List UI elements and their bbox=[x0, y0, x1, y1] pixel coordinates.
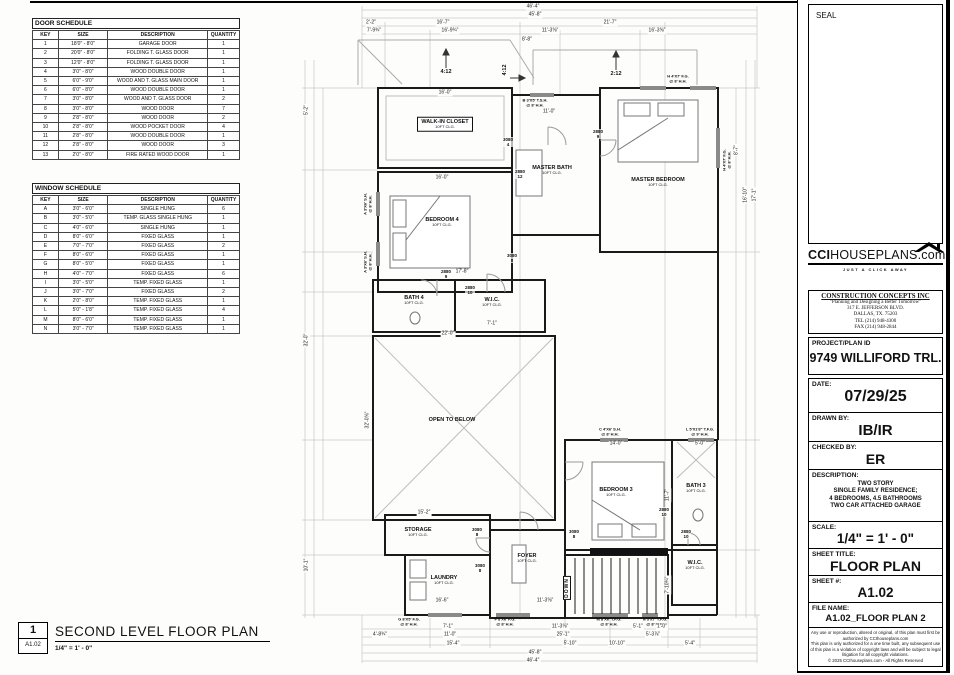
door-schedule-row: 122'8" - 8'0"WOOD DOOR3 bbox=[33, 141, 240, 150]
window-tag: C 4'X6' S.H.@ 8' H.H. bbox=[599, 427, 621, 436]
door-schedule-row: 220'0" - 8'0"FOLDING T. GLASS DOOR1 bbox=[33, 49, 240, 58]
description-line: TWO CAR ATTACHED GARAGE bbox=[809, 503, 942, 511]
dimension-label: 16'-7" bbox=[436, 20, 451, 26]
dimension-label: 16'-6" bbox=[435, 598, 450, 604]
company-name: CONSTRUCTION CONCEPTS INC bbox=[809, 291, 942, 300]
window-tag: F 8'X6' F.G.@ 8' H.H. bbox=[494, 617, 515, 626]
dimension-label: 11'-3⅝" bbox=[551, 624, 570, 630]
room-label: WALK-IN CLOSET10FT CLG. bbox=[417, 117, 473, 132]
dimension-label: 17'-1" bbox=[752, 188, 758, 203]
window-schedule-row: J3'0" - 7'0"FIXED GLASS2 bbox=[33, 288, 240, 297]
roof-pitch-label: 2:12 bbox=[610, 71, 621, 77]
window-tag: B 3'X5' T.S.H.@ 8' H.H. bbox=[522, 98, 547, 107]
window-schedule-row: F8'0" - 6'0"FIXED GLASS1 bbox=[33, 251, 240, 260]
window-tag: A 3'X6' S.H.@ 8' H.H. bbox=[363, 193, 372, 215]
checked-by-box: CHECKED BY: ER bbox=[808, 441, 943, 470]
window-tag: A 3'X6' S.H.@ 8' H.H. bbox=[363, 251, 372, 273]
window-schedule-body: A3'0" - 6'0"SINGLE HUNG6B3'0" - 5'0"TEMP… bbox=[33, 205, 240, 334]
description-box: DESCRIPTION: TWO STORYSINGLE FAMILY RESI… bbox=[808, 469, 943, 523]
door-schedule-table: KEYSIZEDESCRIPTIONQUANTITY 118'0" - 8'0"… bbox=[32, 30, 240, 160]
scale-label: SCALE: bbox=[809, 522, 942, 531]
room-label: W.I.C.10FT CLG. bbox=[666, 560, 724, 571]
room-label: MASTER BEDROOM10FT CLG. bbox=[629, 177, 687, 188]
drawn-by-label: DRAWN BY: bbox=[809, 413, 942, 422]
window-schedule-title: WINDOW SCHEDULE bbox=[32, 183, 240, 194]
seal-label: SEAL bbox=[809, 5, 942, 20]
project-id-box: PROJECT/PLAN ID 9749 WILLIFORD TRL. bbox=[808, 337, 943, 375]
dimension-label: 11'-0" bbox=[443, 632, 457, 638]
sheet-title-label: SHEET TITLE: bbox=[809, 549, 942, 558]
dimension-label: 8'-8" bbox=[521, 37, 533, 43]
door-schedule-row: 132'0" - 8'0"FIRE RATED WOOD DOOR1 bbox=[33, 150, 240, 159]
drawing-sheet-ref: A1.02 bbox=[19, 639, 47, 652]
dimension-label: 21'-7" bbox=[603, 20, 618, 26]
window-schedule-row: B3'0" - 5'0"TEMP. GLASS SINGLE HUNG1 bbox=[33, 214, 240, 223]
room-label: W.I.C.10FT CLG. bbox=[463, 297, 521, 308]
room-label: BATH 310FT CLG. bbox=[667, 483, 725, 494]
window-schedule-row: N3'0" - 7'0"TEMP. FIXED GLASS1 bbox=[33, 324, 240, 333]
door-schedule-row: 102'8" - 8'0"WOOD POCKET DOOR4 bbox=[33, 123, 240, 132]
scale-value: 1/4" = 1' - 0" bbox=[809, 531, 942, 546]
description-label: DESCRIPTION: bbox=[809, 470, 942, 479]
checked-by-label: CHECKED BY: bbox=[809, 442, 942, 451]
dimension-label: 15'-4" bbox=[446, 641, 461, 647]
dimension-label: 5'-2" bbox=[304, 104, 310, 116]
description-line: 4 BEDROOMS, 4.5 BATHROOMS bbox=[809, 496, 942, 504]
room-label: BEDROOM 410FT CLG. bbox=[413, 217, 471, 228]
door-tag: 30808 bbox=[507, 253, 517, 263]
roof-pitch-label: 4:12 bbox=[440, 69, 451, 75]
window-schedule-row: K2'0" - 8'0"TEMP. FIXED GLASS1 bbox=[33, 297, 240, 306]
logo-houseplans: HOUSEPLANS bbox=[830, 248, 917, 262]
drawing-number: 1 bbox=[19, 623, 47, 639]
drawing-number-box: 1 A1.02 bbox=[18, 622, 48, 654]
dimension-label: 17'-8" bbox=[455, 269, 470, 275]
sheet-number-box: SHEET #: A1.02 bbox=[808, 575, 943, 603]
date-box: DATE: 07/29/25 bbox=[808, 378, 943, 413]
drawing-sheet: WALK-IN CLOSET10FT CLG.MASTER BATH10FT C… bbox=[0, 0, 954, 675]
door-schedule-body: 118'0" - 8'0"GARAGE DOOR1220'0" - 8'0"FO… bbox=[33, 40, 240, 160]
dimension-label: 45'-8" bbox=[528, 650, 543, 656]
room-label: OPEN TO BELOW bbox=[423, 417, 481, 423]
window-schedule-row: D8'0" - 6'0"FIXED GLASS1 bbox=[33, 232, 240, 241]
dimension-label: 7'-1" bbox=[486, 321, 498, 327]
door-schedule: DOOR SCHEDULE KEYSIZEDESCRIPTIONQUANTITY… bbox=[32, 18, 240, 160]
window-tag: G 8'X5' F.G.@ 8' H.H. bbox=[398, 617, 420, 626]
dimension-label: 46'-4" bbox=[526, 4, 541, 10]
sheet-number-label: SHEET #: bbox=[809, 576, 942, 585]
logo-wordmark: CCIHOUSEPLANS.com bbox=[808, 248, 943, 265]
copyright-line: © 2025 CCIhouseplans.com - All Rights Re… bbox=[809, 658, 942, 664]
door-schedule-row: 66'0" - 8'0"WOOD DOUBLE DOOR1 bbox=[33, 86, 240, 95]
dimension-label: 32'-0⅝" bbox=[365, 411, 371, 430]
room-label: STORAGE10FT CLG. bbox=[389, 527, 447, 538]
door-tag: 30808 bbox=[472, 527, 482, 537]
dimension-label: 11'-0" bbox=[542, 109, 556, 115]
dimension-label: 7'-9¾" bbox=[366, 28, 382, 34]
scale-box: SCALE: 1/4" = 1' - 0" bbox=[808, 521, 943, 549]
dimension-label: 2'-2" bbox=[365, 20, 377, 26]
door-tag: 288012 bbox=[515, 169, 525, 179]
door-tag: 30804 bbox=[503, 137, 513, 147]
seal-box: SEAL bbox=[808, 4, 943, 244]
dimension-label: 15'-2" bbox=[417, 510, 432, 516]
door-tag: 28809 bbox=[593, 129, 603, 139]
dimension-label: 1'-0" bbox=[656, 624, 668, 630]
window-tag: L 5'X1'8" T.F.G.@ 9' H.H. bbox=[686, 427, 714, 436]
window-schedule-row: E7'0" - 7'0"FIXED GLASS2 bbox=[33, 242, 240, 251]
door-tag: 28809 bbox=[441, 269, 451, 279]
door-tag: 288010 bbox=[659, 507, 669, 517]
room-label: MASTER BATH10FT CLG. bbox=[523, 165, 581, 176]
checked-by-value: ER bbox=[809, 451, 942, 467]
dimension-label: 10'-10" bbox=[608, 641, 626, 647]
door-tag: 30808 bbox=[569, 529, 579, 539]
file-name-label: FILE NAME: bbox=[809, 603, 942, 612]
column-header: DESCRIPTION bbox=[108, 196, 208, 205]
copyright-box: Any use or reproduction, altered or orig… bbox=[808, 627, 943, 667]
dimension-label: 45'-8" bbox=[528, 12, 543, 18]
dimension-label: 25'-1" bbox=[556, 632, 571, 638]
stair-header-wall bbox=[590, 548, 668, 555]
logo-tagline: JUST A CLICK AWAY bbox=[808, 267, 943, 272]
title-block: SEAL CCIHOUSEPLANS.com JUST A CLICK AWAY… bbox=[797, 0, 950, 673]
project-id-value: 9749 WILLIFORD TRL. bbox=[809, 351, 942, 365]
window-tag: H 4'X7' F.G.@ 8' H.H. bbox=[722, 149, 731, 170]
window-schedule-header: KEYSIZEDESCRIPTIONQUANTITY bbox=[33, 196, 240, 205]
description-line: SINGLE FAMILY RESIDENCE; bbox=[809, 488, 942, 496]
drawing-title: SECOND LEVEL FLOOR PLAN bbox=[55, 624, 270, 642]
dimension-label: 16'-0" bbox=[438, 90, 453, 96]
dimension-label: 4'-8¾" bbox=[372, 632, 388, 638]
file-name-value: A1.02_FLOOR PLAN 2 bbox=[809, 613, 942, 624]
column-header: SIZE bbox=[58, 31, 108, 40]
window-schedule-row: L5'0" - 1'8"TEMP. FIXED GLASS4 bbox=[33, 306, 240, 315]
dimension-label: 7'-10¼" bbox=[665, 576, 671, 595]
door-schedule-row: 312'0" - 8'0"FOLDING T. GLASS DOOR1 bbox=[33, 58, 240, 67]
dimension-label: 11'-7" bbox=[665, 488, 671, 502]
sheet-title-value: FLOOR PLAN bbox=[809, 558, 942, 574]
column-header: KEY bbox=[33, 31, 59, 40]
window-schedule-row: G8'0" - 5'0"FIXED GLASS1 bbox=[33, 260, 240, 269]
dimension-label: 5'-4" bbox=[684, 641, 696, 647]
stair-down-label: DOWN bbox=[563, 576, 571, 600]
door-schedule-row: 92'8" - 8'0"WOOD DOOR2 bbox=[33, 113, 240, 122]
window-tag: M 8'X6' T.F.G.@ 8' H.H. bbox=[596, 617, 621, 626]
dimension-label: 16'-3⅝" bbox=[648, 28, 667, 34]
project-id-label: PROJECT/PLAN ID bbox=[809, 338, 942, 347]
company-info-box: CONSTRUCTION CONCEPTS INC "Planning and … bbox=[808, 290, 943, 334]
dimension-label: 16'-0" bbox=[435, 175, 450, 181]
room-label: FOYER10FT CLG. bbox=[498, 553, 556, 564]
dimension-label: 11'-3⅝" bbox=[541, 28, 560, 34]
window-schedule-row: M8'0" - 6'0"TEMP. FIXED GLASS1 bbox=[33, 315, 240, 324]
column-header: QUANTITY bbox=[208, 31, 240, 40]
roof-pitch-label: 4:12 bbox=[502, 64, 508, 75]
company-logo: CCIHOUSEPLANS.com JUST A CLICK AWAY bbox=[808, 248, 943, 272]
window-schedule-table: KEYSIZEDESCRIPTIONQUANTITY A3'0" - 6'0"S… bbox=[32, 195, 240, 334]
window-schedule-row: A3'0" - 6'0"SINGLE HUNG6 bbox=[33, 205, 240, 214]
room-label: BEDROOM 310FT CLG. bbox=[587, 487, 645, 498]
door-tag: 288010 bbox=[465, 285, 475, 295]
dimension-label: 5'-0" bbox=[694, 441, 706, 447]
door-schedule-row: 112'8" - 8'0"WOOD DOUBLE DOOR1 bbox=[33, 132, 240, 141]
description-lines: TWO STORYSINGLE FAMILY RESIDENCE;4 BEDRO… bbox=[809, 481, 942, 511]
door-schedule-row: 43'0" - 8'0"WOOD DOUBLE DOOR1 bbox=[33, 67, 240, 76]
drawing-scale: 1/4" = 1' - 0" bbox=[55, 645, 92, 652]
dimension-label: 11'-3⅝" bbox=[536, 598, 555, 604]
description-line: TWO STORY bbox=[809, 481, 942, 489]
dimension-label: 8'-7" bbox=[734, 144, 740, 156]
column-header: DESCRIPTION bbox=[108, 31, 208, 40]
door-schedule-row: 73'0" - 8'0"WOOD AND T. GLASS DOOR2 bbox=[33, 95, 240, 104]
house-roof-icon bbox=[913, 241, 945, 253]
door-schedule-title: DOOR SCHEDULE bbox=[32, 18, 240, 29]
room-label: BATH 410FT CLG. bbox=[385, 295, 443, 306]
company-fax: FAX (214) 948-2844 bbox=[809, 325, 942, 331]
window-schedule-row: C4'0" - 6'0"SINGLE HUNG1 bbox=[33, 223, 240, 232]
dimension-label: 10'-1" bbox=[304, 558, 310, 573]
column-header: KEY bbox=[33, 196, 59, 205]
dimension-label: 14'-0" bbox=[609, 441, 624, 447]
dimension-label: 5'-3⅞" bbox=[645, 632, 661, 638]
window-schedule-row: I3'0" - 5'0"TEMP. FIXED GLASS1 bbox=[33, 278, 240, 287]
drawn-by-box: DRAWN BY: IB/IR bbox=[808, 412, 943, 443]
window-tag: H 4'X7' F.G.@ 8' H.H. bbox=[667, 74, 688, 83]
copyright-line: Any use or reproduction, altered or orig… bbox=[809, 630, 942, 636]
dimension-label: 22'-0" bbox=[441, 331, 456, 337]
door-tag: 30808 bbox=[475, 563, 485, 573]
sheet-title-box: SHEET TITLE: FLOOR PLAN bbox=[808, 548, 943, 577]
dimension-label: 7'-1" bbox=[442, 624, 454, 630]
date-value: 07/29/25 bbox=[809, 388, 942, 406]
room-label: LAUNDRY10FT CLG. bbox=[415, 575, 473, 586]
dimension-label: 32'-0" bbox=[304, 333, 310, 348]
dimension-label: 46'-4" bbox=[526, 658, 541, 664]
door-schedule-header: KEYSIZEDESCRIPTIONQUANTITY bbox=[33, 31, 240, 40]
drawn-by-value: IB/IR bbox=[809, 422, 942, 439]
door-tag: 288010 bbox=[681, 529, 691, 539]
dimension-label: 5'-10" bbox=[563, 641, 578, 647]
copyright-line: This plan is only authorized for a one t… bbox=[809, 641, 942, 647]
door-schedule-row: 56'0" - 9'0"WOOD AND T. GLASS MAIN DOOR1 bbox=[33, 77, 240, 86]
column-header: SIZE bbox=[58, 196, 108, 205]
door-schedule-row: 118'0" - 8'0"GARAGE DOOR1 bbox=[33, 40, 240, 49]
dimension-label: 16'-10" bbox=[743, 186, 749, 204]
window-schedule: WINDOW SCHEDULE KEYSIZEDESCRIPTIONQUANTI… bbox=[32, 183, 240, 334]
date-label: DATE: bbox=[809, 379, 942, 388]
sheet-number-value: A1.02 bbox=[809, 585, 942, 600]
file-name-box: FILE NAME: A1.02_FLOOR PLAN 2 bbox=[808, 602, 943, 629]
dimension-label: 16'-9¾" bbox=[441, 28, 460, 34]
window-schedule-row: H4'0" - 7'0"FIXED GLASS6 bbox=[33, 269, 240, 278]
column-header: QUANTITY bbox=[208, 196, 240, 205]
dimension-label: 5'-1" bbox=[632, 624, 644, 630]
logo-cci: CCI bbox=[808, 248, 830, 262]
door-schedule-row: 83'0" - 8'0"WOOD DOOR7 bbox=[33, 104, 240, 113]
